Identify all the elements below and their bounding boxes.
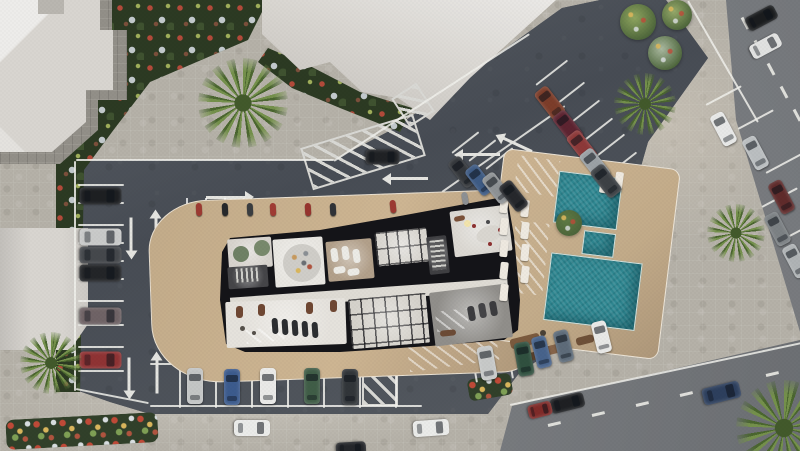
parking-stall-line [78, 224, 124, 226]
interior-prop [291, 320, 298, 336]
lane-direction-arrow [390, 177, 428, 180]
car [342, 369, 358, 405]
car [224, 369, 240, 405]
interior-prop [464, 220, 471, 227]
motorcycle [305, 203, 312, 216]
interior-prop [311, 322, 318, 338]
motorcycle [247, 203, 254, 216]
room-cubicles-north [374, 227, 429, 266]
planter-bush [662, 0, 692, 30]
car [80, 265, 122, 282]
palm-tree [614, 73, 676, 135]
planter-bush [648, 36, 682, 70]
interior-prop [472, 224, 476, 228]
parking-stall-line [78, 184, 124, 186]
interior-prop [486, 220, 490, 224]
rooftop-vent [38, 0, 64, 14]
tree-shadow [190, 236, 250, 346]
interior-prop [254, 240, 270, 256]
car [80, 247, 122, 264]
parking-stall-line [76, 159, 334, 161]
pool-step-basin [581, 230, 616, 258]
palm-tree [198, 58, 288, 148]
stairs-right [429, 239, 446, 270]
car [80, 352, 122, 369]
car [304, 368, 320, 404]
motorcycle [222, 203, 229, 216]
car [80, 308, 122, 325]
motorcycle [389, 200, 396, 214]
planter-bush [556, 210, 582, 236]
lane-direction-arrow [462, 153, 500, 156]
interior-prop [258, 304, 265, 316]
motorcycle [196, 203, 203, 216]
lobby-round-rug [283, 244, 321, 282]
motorcycle [330, 203, 337, 216]
interior-prop [281, 319, 288, 335]
planter-bush [620, 4, 656, 40]
parking-stall-line [78, 300, 124, 302]
interior-prop [306, 302, 313, 314]
parking-stall-line [78, 346, 124, 348]
interior-prop [301, 321, 308, 337]
interior-prop [252, 331, 256, 335]
palm-tree [707, 204, 765, 262]
palm-tree [20, 332, 82, 394]
car [80, 188, 122, 205]
lane-direction-arrow [130, 218, 133, 252]
car [187, 368, 203, 404]
aerial-site-render [0, 0, 800, 451]
car [234, 420, 270, 436]
car [336, 441, 367, 451]
interior-prop [330, 300, 337, 312]
car [80, 229, 122, 246]
car [412, 419, 449, 437]
interior-prop [271, 318, 278, 334]
car [260, 368, 276, 404]
motorcycle [270, 203, 277, 216]
car [366, 150, 400, 165]
room-changing-cubicles [348, 293, 430, 350]
interior-prop [488, 242, 492, 246]
lounge-striped-mat [435, 308, 469, 332]
